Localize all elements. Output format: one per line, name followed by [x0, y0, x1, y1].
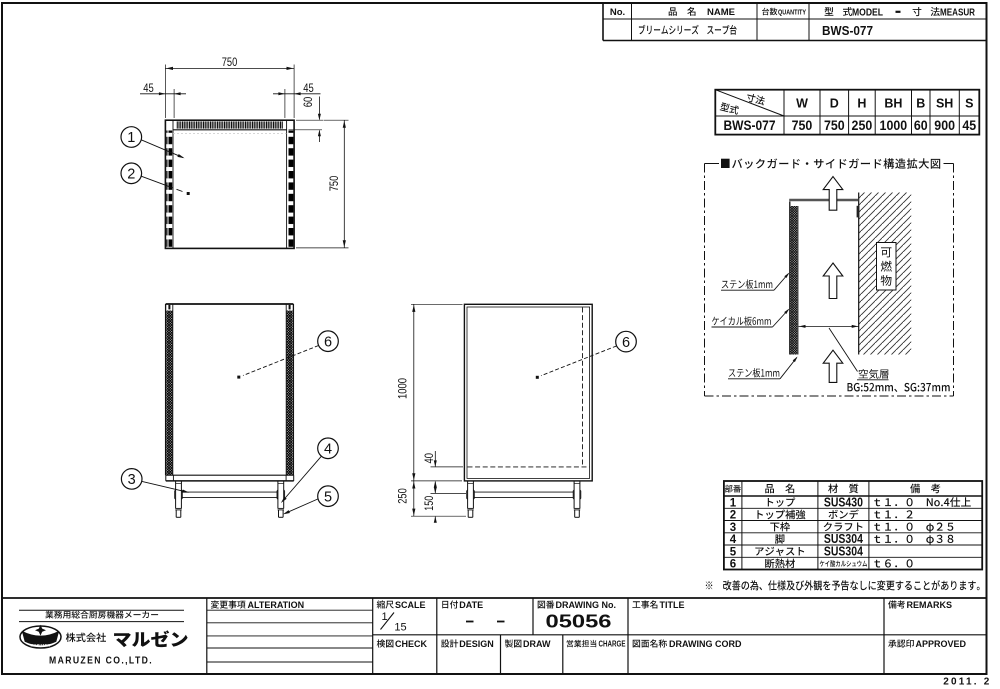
svg-text:MARUZEN CO.,LTD.: MARUZEN CO.,LTD.	[49, 656, 153, 667]
svg-text:S: S	[965, 97, 973, 111]
svg-text:W: W	[796, 97, 808, 111]
svg-text:1000: 1000	[880, 118, 908, 133]
svg-text:CHECK: CHECK	[395, 639, 428, 649]
svg-text:APPROVED: APPROVED	[916, 639, 967, 649]
svg-text:1: 1	[730, 497, 737, 509]
svg-text:B: B	[916, 97, 925, 111]
svg-text:MEASUR: MEASUR	[940, 7, 976, 18]
svg-text:TITLE: TITLE	[660, 600, 685, 610]
svg-text:45: 45	[962, 118, 976, 133]
svg-text:DRAWING CORD: DRAWING CORD	[669, 639, 742, 649]
svg-text:250: 250	[852, 118, 873, 133]
svg-text:05056: 05056	[546, 612, 612, 632]
svg-text:2: 2	[730, 510, 736, 522]
svg-text:DRAWING No.: DRAWING No.	[556, 600, 617, 610]
svg-text:QUANTITY: QUANTITY	[778, 8, 806, 17]
svg-text:CHARGE: CHARGE	[599, 640, 626, 649]
svg-text:DESIGN: DESIGN	[459, 639, 494, 649]
svg-text:750: 750	[327, 176, 341, 192]
svg-text:MARUZEN: MARUZEN	[31, 644, 51, 648]
svg-text:15: 15	[394, 622, 406, 634]
svg-text:250: 250	[395, 488, 409, 504]
svg-text:2: 2	[127, 167, 135, 183]
svg-text:40: 40	[424, 453, 436, 464]
svg-text:900: 900	[934, 118, 955, 133]
svg-text:BWS-077: BWS-077	[822, 24, 873, 38]
svg-text:DRAW: DRAW	[523, 639, 551, 649]
svg-text:BH: BH	[884, 97, 902, 111]
svg-text:No.: No.	[610, 7, 625, 18]
svg-text:ALTERATION: ALTERATION	[248, 600, 305, 610]
svg-text:5: 5	[730, 546, 737, 558]
svg-text:SUS304: SUS304	[824, 544, 863, 558]
svg-text:SH: SH	[936, 97, 953, 111]
svg-text:5: 5	[324, 489, 332, 505]
svg-text:45: 45	[143, 81, 154, 95]
svg-text:150: 150	[424, 496, 436, 511]
svg-text:H: H	[857, 97, 866, 111]
svg-text:6: 6	[730, 559, 736, 571]
svg-text:750: 750	[222, 55, 238, 69]
svg-text:BWS-077: BWS-077	[724, 118, 776, 133]
svg-text:6: 6	[324, 334, 332, 350]
svg-text:1: 1	[127, 130, 135, 146]
svg-text:1000: 1000	[395, 378, 409, 399]
svg-text:4: 4	[730, 534, 737, 546]
svg-text:750: 750	[824, 118, 845, 133]
svg-text:DATE: DATE	[459, 600, 483, 610]
svg-text:REMARKS: REMARKS	[907, 600, 953, 610]
svg-text:45: 45	[303, 81, 314, 95]
svg-text:60: 60	[914, 118, 928, 133]
svg-text:3: 3	[128, 472, 136, 488]
svg-text:2011. 2: 2011. 2	[943, 677, 991, 688]
svg-text:6: 6	[622, 335, 630, 351]
svg-text:750: 750	[792, 118, 813, 133]
svg-text:D: D	[830, 97, 839, 111]
svg-text:60: 60	[301, 97, 315, 108]
svg-text:NAME: NAME	[707, 7, 735, 18]
svg-text:SCALE: SCALE	[395, 600, 426, 610]
svg-text:4: 4	[324, 442, 332, 458]
svg-text:MODEL: MODEL	[852, 7, 883, 18]
svg-text:SUS430: SUS430	[824, 495, 863, 509]
svg-text:3: 3	[730, 522, 736, 534]
